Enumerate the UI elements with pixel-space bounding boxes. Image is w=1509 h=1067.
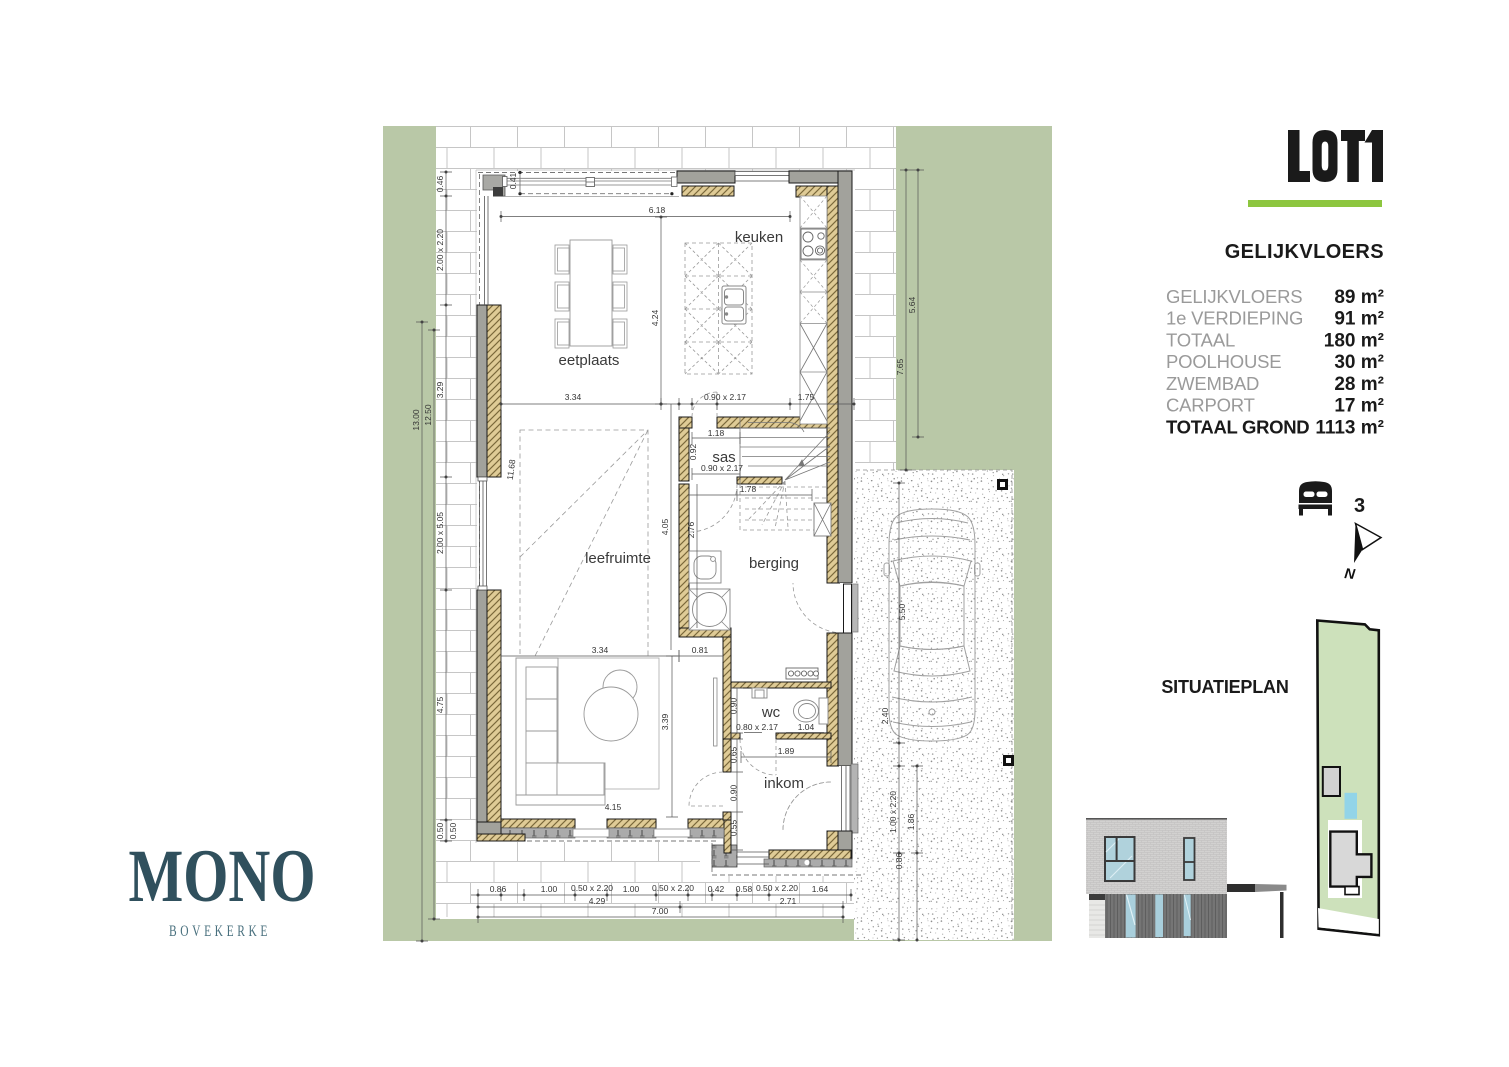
svg-text:0.81: 0.81 bbox=[692, 645, 709, 655]
svg-text:0.50: 0.50 bbox=[435, 822, 445, 839]
svg-text:3.34: 3.34 bbox=[592, 645, 609, 655]
svg-text:7.65: 7.65 bbox=[895, 358, 905, 375]
svg-text:TOTAAL: TOTAAL bbox=[1166, 329, 1235, 350]
svg-text:0.90 x 2.17: 0.90 x 2.17 bbox=[704, 392, 746, 402]
svg-text:12.50: 12.50 bbox=[423, 404, 433, 426]
svg-text:180 m²: 180 m² bbox=[1324, 330, 1384, 351]
svg-text:berging: berging bbox=[749, 555, 799, 572]
svg-text:eetplaats: eetplaats bbox=[559, 352, 620, 369]
svg-text:3: 3 bbox=[1354, 495, 1365, 517]
svg-text:28 m²: 28 m² bbox=[1334, 374, 1384, 395]
svg-text:2.71: 2.71 bbox=[780, 896, 797, 906]
svg-text:3.39: 3.39 bbox=[660, 713, 670, 730]
svg-text:keuken: keuken bbox=[735, 229, 783, 246]
svg-text:1.86: 1.86 bbox=[906, 813, 916, 830]
svg-text:3.29: 3.29 bbox=[435, 381, 445, 398]
svg-text:4.24: 4.24 bbox=[650, 309, 660, 326]
svg-text:2.76: 2.76 bbox=[686, 521, 696, 538]
svg-text:1.75: 1.75 bbox=[798, 392, 815, 402]
svg-text:1113 m²: 1113 m² bbox=[1315, 418, 1384, 439]
svg-text:1.04: 1.04 bbox=[798, 722, 815, 732]
svg-text:0.90 x 2.17: 0.90 x 2.17 bbox=[701, 463, 743, 473]
svg-text:3.34: 3.34 bbox=[565, 392, 582, 402]
svg-text:0.86: 0.86 bbox=[894, 852, 904, 869]
svg-text:4.05: 4.05 bbox=[660, 518, 670, 535]
svg-text:7.00: 7.00 bbox=[652, 906, 669, 916]
svg-text:0.80 x 2.17: 0.80 x 2.17 bbox=[736, 722, 778, 732]
svg-text:1e VERDIEPING: 1e VERDIEPING bbox=[1166, 308, 1303, 329]
svg-text:0.65: 0.65 bbox=[729, 746, 739, 763]
svg-text:1.00 x 2.20: 1.00 x 2.20 bbox=[888, 791, 898, 833]
svg-text:0.50 x 2.20: 0.50 x 2.20 bbox=[756, 883, 798, 893]
svg-text:GELIJKVLOERS: GELIJKVLOERS bbox=[1225, 241, 1384, 263]
svg-text:0.58: 0.58 bbox=[736, 884, 753, 894]
svg-text:0.41: 0.41 bbox=[508, 172, 518, 189]
svg-text:89 m²: 89 m² bbox=[1334, 287, 1384, 308]
svg-text:0.50 x 2.20: 0.50 x 2.20 bbox=[652, 883, 694, 893]
svg-text:1.64: 1.64 bbox=[812, 884, 829, 894]
svg-text:17 m²: 17 m² bbox=[1334, 396, 1384, 417]
svg-text:4.29: 4.29 bbox=[589, 896, 606, 906]
svg-text:13.00: 13.00 bbox=[411, 409, 421, 431]
svg-text:0.42: 0.42 bbox=[708, 884, 725, 894]
svg-text:SITUATIEPLAN: SITUATIEPLAN bbox=[1161, 677, 1288, 697]
svg-text:1.18: 1.18 bbox=[708, 428, 725, 438]
svg-text:1.00: 1.00 bbox=[541, 884, 558, 894]
svg-text:5.64: 5.64 bbox=[907, 296, 917, 313]
svg-text:4.75: 4.75 bbox=[435, 696, 445, 713]
svg-text:0.55: 0.55 bbox=[729, 819, 739, 836]
svg-text:91 m²: 91 m² bbox=[1334, 309, 1384, 330]
svg-text:2.00 x 5.05: 2.00 x 5.05 bbox=[435, 512, 445, 554]
svg-text:POOLHOUSE: POOLHOUSE bbox=[1166, 351, 1281, 372]
svg-text:1.00: 1.00 bbox=[623, 884, 640, 894]
svg-text:0.90: 0.90 bbox=[729, 784, 739, 801]
svg-text:30 m²: 30 m² bbox=[1334, 352, 1384, 373]
svg-text:6.18: 6.18 bbox=[649, 205, 666, 215]
svg-text:TOTAAL GROND: TOTAAL GROND bbox=[1166, 417, 1309, 438]
svg-text:0.50 x 2.20: 0.50 x 2.20 bbox=[571, 883, 613, 893]
svg-text:CARPORT: CARPORT bbox=[1166, 395, 1255, 416]
svg-text:BOVEKERKE: BOVEKERKE bbox=[169, 923, 271, 940]
svg-text:0.50: 0.50 bbox=[448, 822, 458, 839]
svg-text:4.15: 4.15 bbox=[605, 802, 622, 812]
svg-text:1.78: 1.78 bbox=[740, 484, 757, 494]
svg-text:MONO: MONO bbox=[129, 835, 316, 918]
svg-text:GELIJKVLOERS: GELIJKVLOERS bbox=[1166, 286, 1302, 307]
svg-text:5.50: 5.50 bbox=[897, 603, 907, 620]
svg-text:inkom: inkom bbox=[764, 775, 804, 792]
svg-text:wc: wc bbox=[761, 704, 781, 721]
svg-text:1.89: 1.89 bbox=[778, 746, 795, 756]
svg-text:0.86: 0.86 bbox=[490, 884, 507, 894]
svg-text:0.90: 0.90 bbox=[729, 697, 739, 714]
svg-text:0.92: 0.92 bbox=[688, 443, 698, 460]
svg-text:2.40: 2.40 bbox=[880, 707, 890, 724]
svg-text:ZWEMBAD: ZWEMBAD bbox=[1166, 373, 1259, 394]
svg-text:0.46: 0.46 bbox=[435, 175, 445, 192]
svg-text:2.00 x 2.20: 2.00 x 2.20 bbox=[435, 229, 445, 271]
svg-text:leefruimte: leefruimte bbox=[585, 550, 651, 567]
